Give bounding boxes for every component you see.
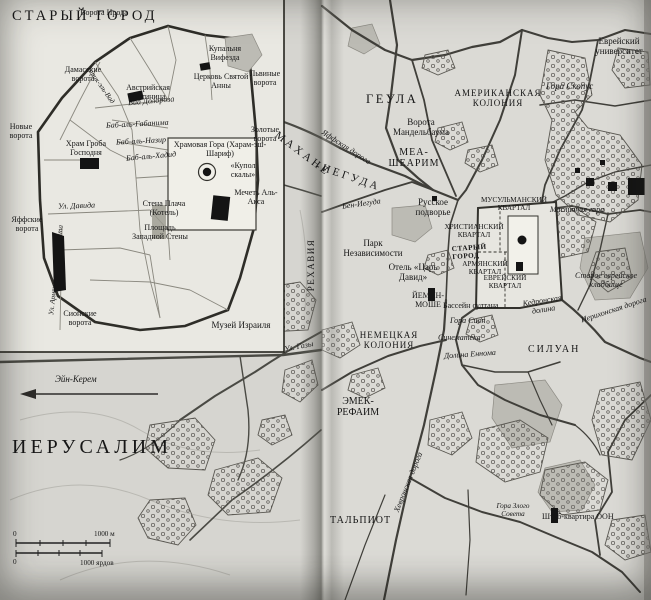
label-israel-museum: Музей Израиля bbox=[210, 320, 272, 330]
label-western-wall: Стена Плача (Котель) bbox=[134, 200, 194, 218]
label-king-david-hotel: Отель «Царь Давид» bbox=[378, 262, 448, 282]
label-german-colony: НЕМЕЦКАЯ КОЛОНИЯ bbox=[358, 330, 420, 350]
label-geula: ГЕУЛА bbox=[366, 92, 446, 106]
book-gutter bbox=[300, 0, 344, 600]
scale-max-yd: 1000 ярдов bbox=[80, 559, 114, 567]
label-sultans-pool: Бассейн султана bbox=[443, 302, 513, 311]
label-mea-shearim: МЕА-ШЕАРИМ bbox=[384, 147, 444, 169]
jerusalem-map-scan: СТАРЫЙ ГОРОД Ворота Ирода Дамасские воро… bbox=[0, 0, 651, 600]
label-zion-gate: Сионские ворота bbox=[52, 310, 108, 328]
label-emek-refaim: ЭМЕК-РЕФАИМ bbox=[332, 396, 384, 418]
label-mount-of-olives: Масличная гора bbox=[546, 206, 608, 215]
label-st-anne-church: Церковь Святой Анны bbox=[192, 73, 250, 91]
label-new-gate: Новые ворота bbox=[0, 123, 42, 141]
label-independence-park: Парк Независимости bbox=[336, 238, 410, 258]
label-herod-gate: Ворота Ирода bbox=[80, 9, 128, 18]
label-russian-compound: Русское подворье bbox=[402, 197, 464, 217]
label-holy-sepulchre: Храм Гроба Господня bbox=[50, 140, 122, 158]
label-jaffa-gate: Яффские ворота bbox=[4, 216, 50, 234]
scale-zero-yd: 0 bbox=[13, 558, 17, 566]
label-american-colony: АМЕРИКАНСКАЯ КОЛОНИЯ bbox=[450, 88, 546, 108]
label-hill-of-evil-counsel: Гора Злого Совета bbox=[490, 502, 536, 518]
scale-zero-m: 0 bbox=[13, 530, 17, 538]
label-un-headquarters: Штаб-квартира ООН bbox=[542, 513, 636, 522]
scale-max-m: 1000 м bbox=[94, 530, 115, 538]
label-western-wall-plaza: Площадь Западной Стены bbox=[132, 224, 188, 242]
label-rehavia: РЕХАВИЯ bbox=[306, 234, 316, 296]
label-temple-mount: Храмовая Гора (Харам-эш-Шариф) bbox=[170, 141, 270, 159]
label-ein-kerem: Эйн-Керем bbox=[55, 374, 145, 384]
label-silwan: СИЛУАН bbox=[528, 344, 590, 355]
label-david-st: Ул. Давида bbox=[58, 201, 104, 212]
label-jewish-quarter: ЕВРЕЙСКИЙ КВАРТАЛ bbox=[474, 274, 536, 290]
label-talpiot: ТАЛЬПИОТ bbox=[330, 515, 394, 526]
label-hebrew-university: Еврейский университет bbox=[584, 36, 651, 56]
label-bethesda-pool: Купальня Вифезда bbox=[198, 45, 252, 63]
label-mandelbaum-gate: Ворота Мандельбаума bbox=[381, 117, 461, 137]
label-mount-zion: Гора Сион bbox=[450, 317, 498, 326]
label-old-jewish-cemetery: Старое еврейское кладбище bbox=[564, 272, 648, 290]
label-muslim-quarter: МУСУЛЬМАНСКИЙ КВАРТАЛ bbox=[476, 196, 552, 212]
city-title: ИЕРУСАЛИМ bbox=[12, 436, 232, 458]
label-al-aqsa: Мечеть Аль-Акса bbox=[230, 189, 282, 207]
label-cinematheque: Синематека bbox=[438, 334, 492, 343]
label-mount-scopus: Гора Скопус bbox=[546, 81, 606, 91]
label-lions-gate: Львиные ворота bbox=[245, 70, 285, 88]
label-christian-quarter: ХРИСТИАНСКИЙ КВАРТАЛ bbox=[441, 223, 507, 239]
label-dome-of-rock: «Купол скалы» bbox=[222, 162, 264, 180]
